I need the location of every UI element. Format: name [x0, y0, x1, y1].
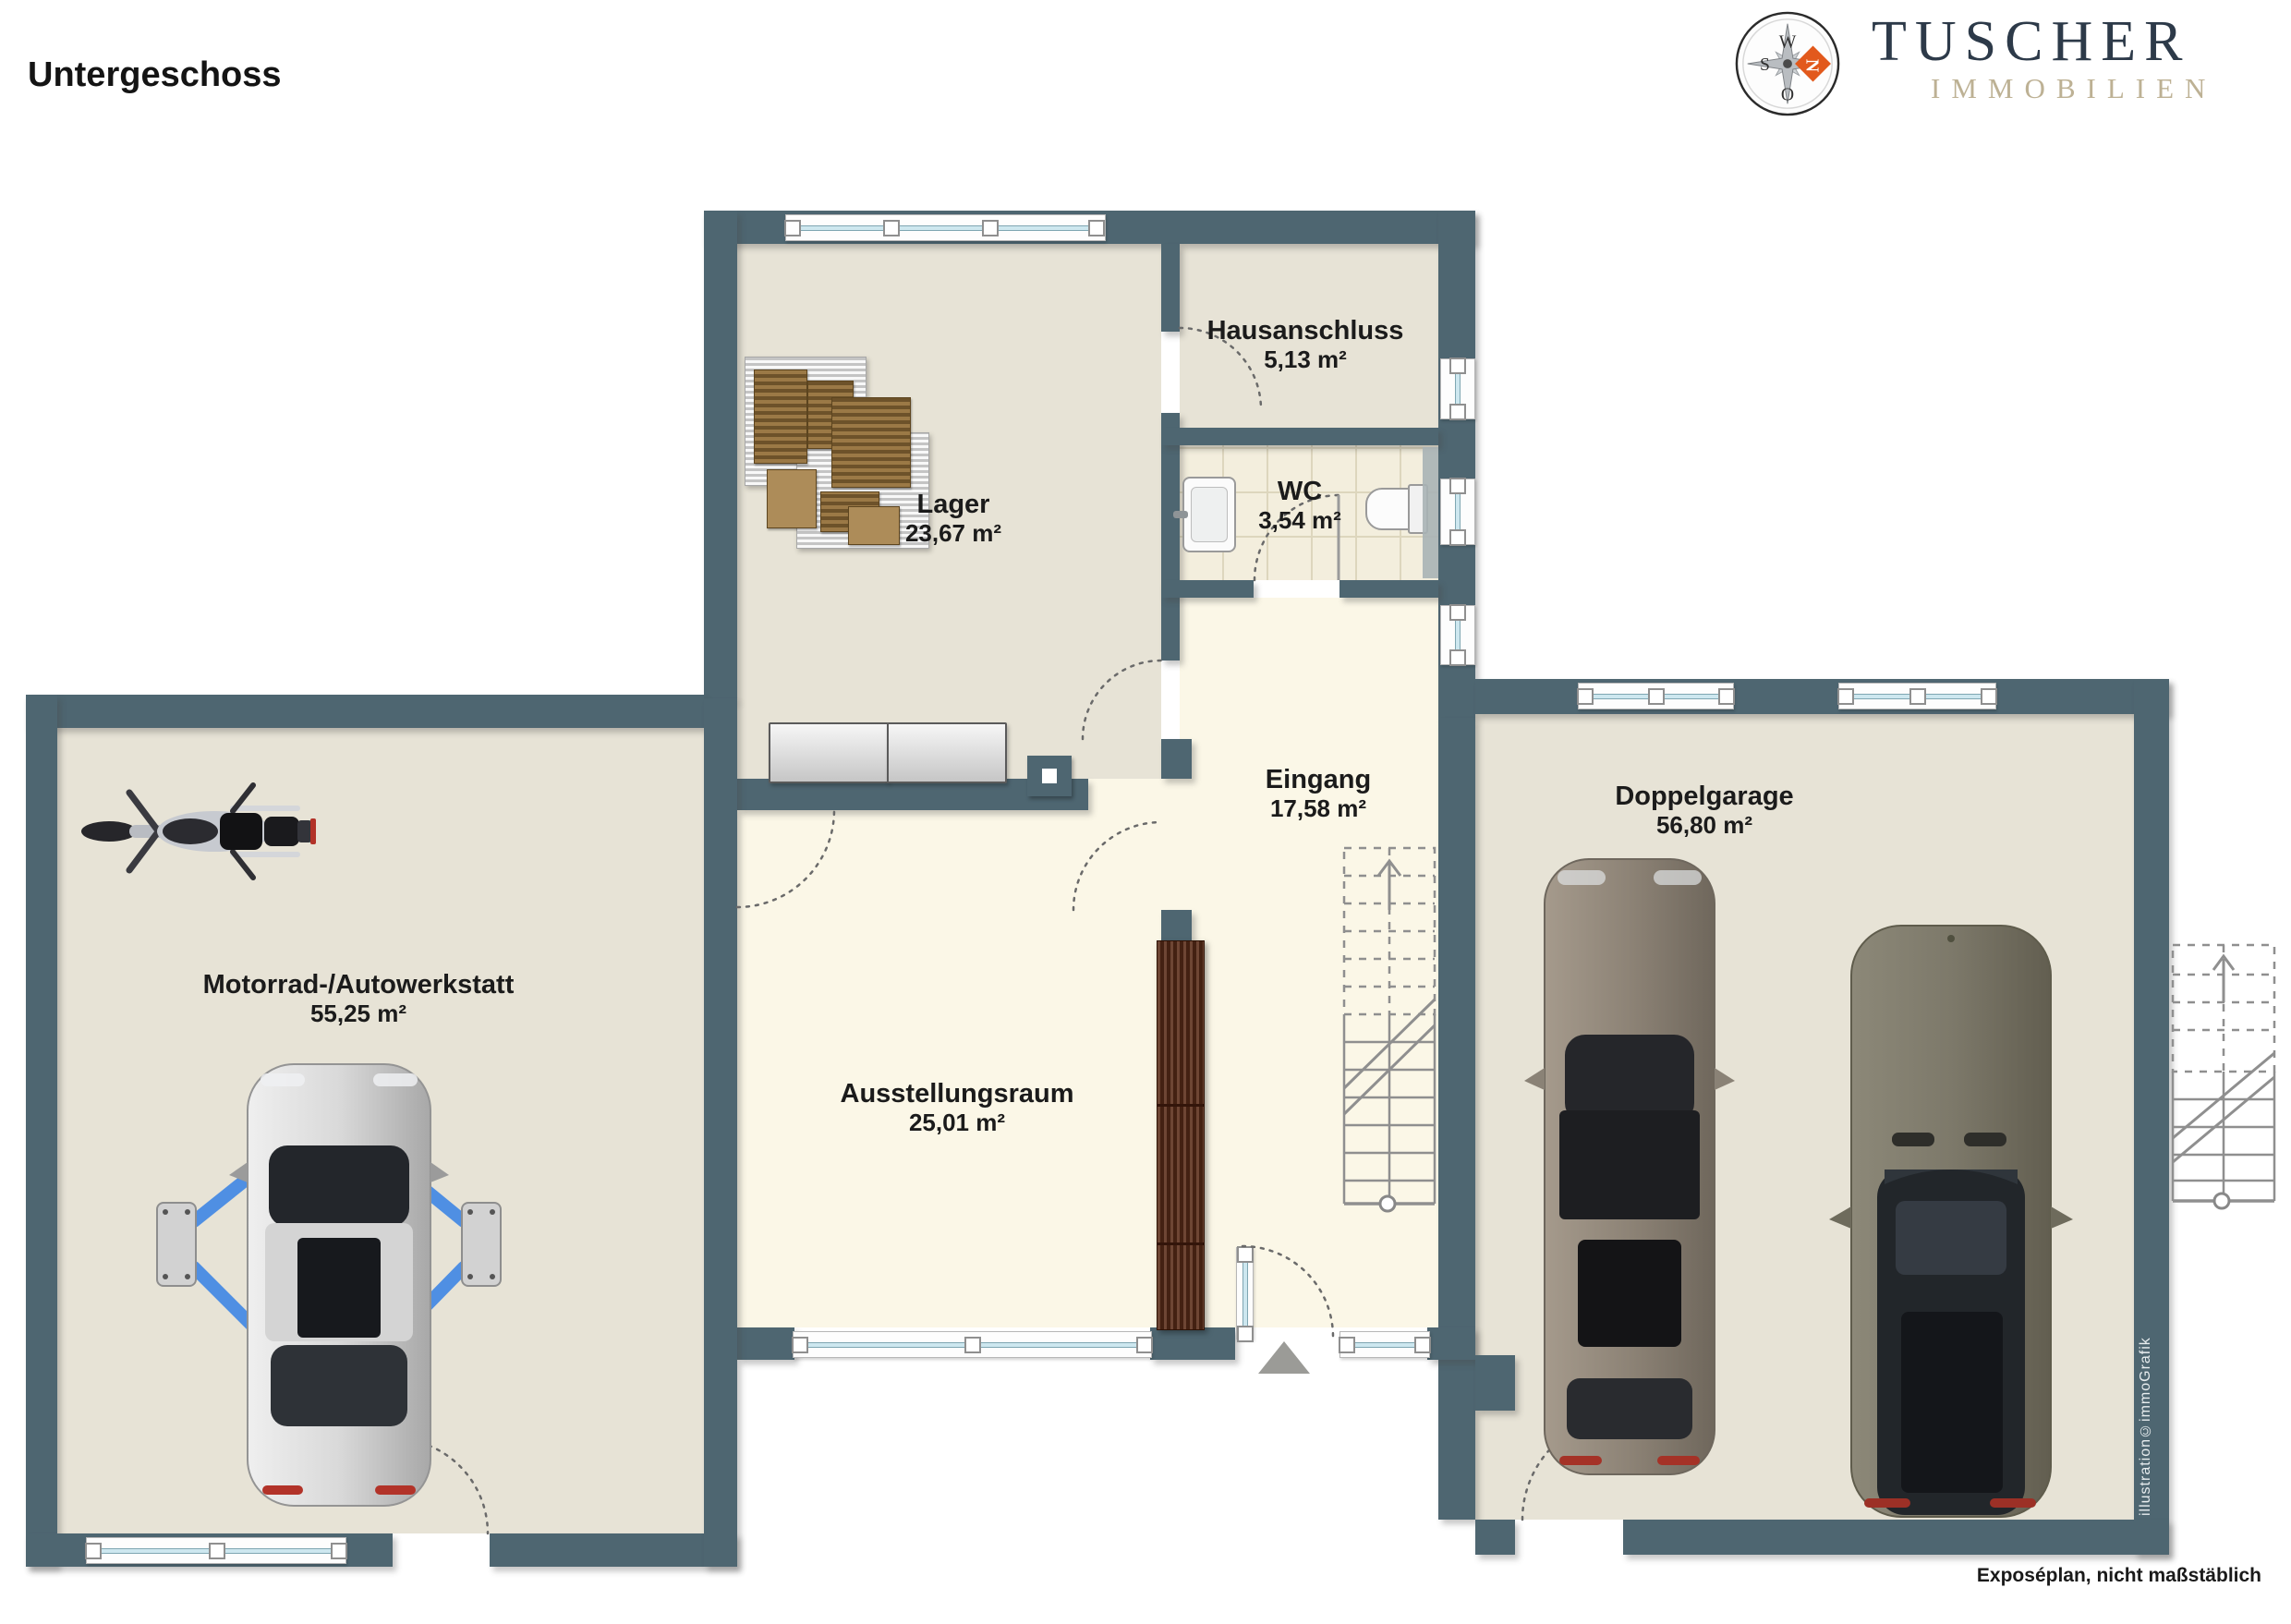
wall [1623, 1520, 2169, 1555]
room-label-hausanschluss: Hausanschluss 5,13 m² [1102, 316, 1509, 373]
wall [1150, 1327, 1235, 1360]
wall [26, 695, 57, 1567]
stair-exterior [2173, 945, 2274, 1208]
disclaimer-note: Exposéplan, nicht maßstäblich [1977, 1565, 2261, 1587]
window [86, 1537, 346, 1564]
page-title: Untergeschoss [28, 55, 282, 95]
compass-icon: W S O N [1733, 9, 1842, 118]
wall [1427, 1327, 1475, 1360]
entrance-arrow [1258, 1341, 1310, 1374]
entrance-door-leaf [1236, 1247, 1254, 1339]
storage-box [754, 370, 807, 464]
window [1339, 1331, 1430, 1358]
floor-werkstatt [57, 728, 704, 1533]
wall [490, 1533, 737, 1567]
brand-subtitle: IMMOBILIEN [1931, 72, 2216, 105]
illustration-credit: illustration©immoGrafik [2138, 1328, 2167, 1524]
room-label-eingang: Eingang 17,58 m² [1115, 765, 1521, 822]
wall [704, 211, 737, 700]
window [1578, 683, 1734, 709]
wall [1339, 580, 1438, 598]
window [785, 214, 1106, 241]
room-label-werkstatt: Motorrad-/Autowerkstatt 55,25 m² [155, 970, 562, 1027]
wall [1161, 413, 1180, 661]
floor-ausstellungsraum [737, 810, 1192, 1327]
sideboard [887, 722, 1007, 783]
window [1440, 605, 1475, 665]
sideboard [769, 722, 889, 783]
wall [1161, 910, 1192, 940]
wall [1475, 1355, 1515, 1411]
window-glass [786, 225, 1105, 231]
room-label-lager: Lager 23,67 m² [750, 490, 1157, 547]
brand-name: TUSCHER [1872, 9, 2190, 75]
compass-letter-w: W [1779, 31, 1797, 52]
shaft [1027, 756, 1072, 796]
compass-letter-o: O [1781, 84, 1794, 104]
wall [1475, 1520, 1515, 1555]
wall [704, 698, 737, 1567]
window [793, 1331, 1152, 1358]
wall [1161, 580, 1254, 598]
wardrobe-cabinet [1157, 940, 1205, 1330]
room-label-wc: WC 3,54 m² [1097, 477, 1503, 534]
wall [1438, 718, 1475, 1520]
wall [26, 695, 704, 728]
room-label-ausstellungsraum: Ausstellungsraum 25,01 m² [754, 1079, 1160, 1136]
compass-letter-n: N [1802, 59, 1823, 72]
window [1838, 683, 1996, 709]
wall [737, 1327, 794, 1360]
wall [1161, 428, 1438, 445]
floor-eingang [1180, 598, 1438, 1327]
storage-box [831, 397, 911, 488]
floorplan-canvas: Untergeschoss W S O N TUSCHER IMMOBILIEN [0, 0, 2291, 1624]
compass-letter-s: S [1760, 55, 1770, 75]
room-label-doppelgarage: Doppelgarage 56,80 m² [1501, 782, 1908, 839]
